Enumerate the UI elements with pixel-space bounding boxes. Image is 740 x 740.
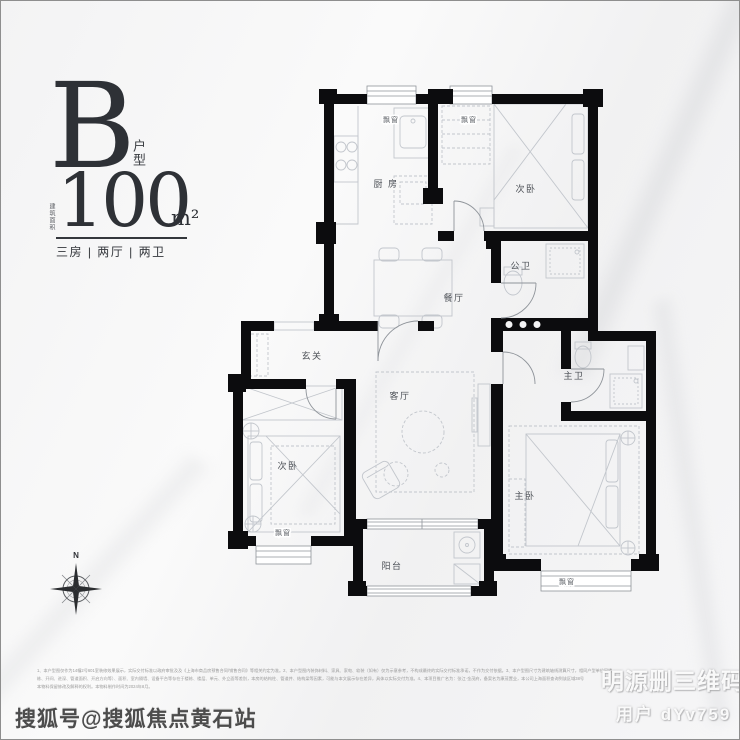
user-watermark: 明源删三维码 用户 dYv759 <box>601 662 740 725</box>
area-unit: m² <box>171 206 199 230</box>
title-divider <box>56 237 187 239</box>
area-value: 100 <box>57 164 189 238</box>
user-watermark-line1: 明源删三维码 <box>601 662 740 696</box>
layout-summary: 三房 | 两厅 | 两卫 <box>56 243 196 260</box>
area-prefix-label: 建筑面积 <box>47 203 56 231</box>
room-label-dining: 餐厅 <box>443 292 464 303</box>
floorplan-svg: 厨 房 次卧 公卫 餐厅 玄关 客厅 次卧 主卫 主卧 阳台 飘窗 飘窗 飘窗 … <box>226 84 661 599</box>
bay-window-label: 飘窗 <box>461 115 477 124</box>
room-label-living: 客厅 <box>389 390 410 401</box>
room-label-balcony: 阳台 <box>381 560 402 571</box>
room-label-master-bath: 主卫 <box>563 370 584 381</box>
user-watermark-line2: 用户 dYv759 <box>616 700 740 725</box>
room-label-bedroom2-left: 次卧 <box>277 460 298 471</box>
furniture-layer <box>242 104 644 584</box>
compass: N <box>45 547 107 630</box>
vanity-basins <box>506 321 541 328</box>
room-label-bedroom2-top: 次卧 <box>515 183 536 194</box>
bay-window-label: 飘窗 <box>559 577 575 586</box>
bay-window-label: 飘窗 <box>383 115 399 124</box>
floorplan-page: B 户型 建筑面积 100 m² 三房 | 两厅 | 两卫 <box>0 0 740 740</box>
compass-north-label: N <box>73 551 79 560</box>
bay-window-label: 飘窗 <box>275 528 291 537</box>
compass-svg: N <box>45 547 107 625</box>
room-label-kitchen: 厨 房 <box>373 178 398 189</box>
room-label-foyer: 玄关 <box>301 350 322 361</box>
sohu-watermark: 搜狐号@搜狐焦点黄石站 <box>15 703 256 733</box>
floorplan-drawing: 厨 房 次卧 公卫 餐厅 玄关 客厅 次卧 主卫 主卧 阳台 飘窗 飘窗 飘窗 … <box>226 84 661 604</box>
room-label-master-bedroom: 主卧 <box>514 490 535 501</box>
room-label-public-bath: 公卫 <box>510 261 531 271</box>
